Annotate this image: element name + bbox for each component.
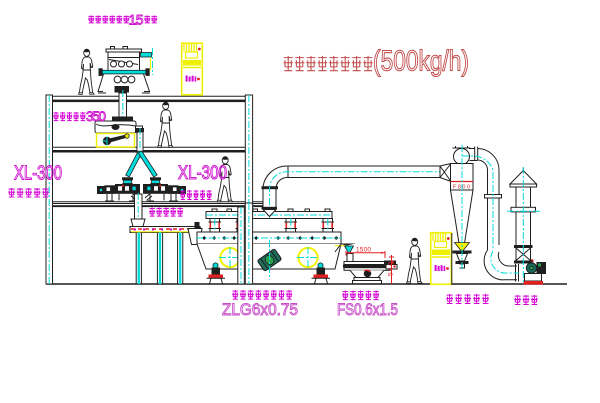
svg-text:350: 350: [86, 109, 106, 124]
svg-text:(500kg/h): (500kg/h): [373, 46, 469, 78]
svg-text:XL-300: XL-300: [178, 163, 227, 184]
svg-text:540: 540: [388, 262, 395, 276]
svg-text:ZLG6x0.75: ZLG6x0.75: [222, 301, 298, 319]
svg-text:1500: 1500: [356, 247, 371, 254]
svg-text:1.5: 1.5: [129, 12, 144, 28]
svg-text:XL-300: XL-300: [14, 163, 62, 185]
svg-text:FS0.6x1.5: FS0.6x1.5: [337, 301, 398, 319]
